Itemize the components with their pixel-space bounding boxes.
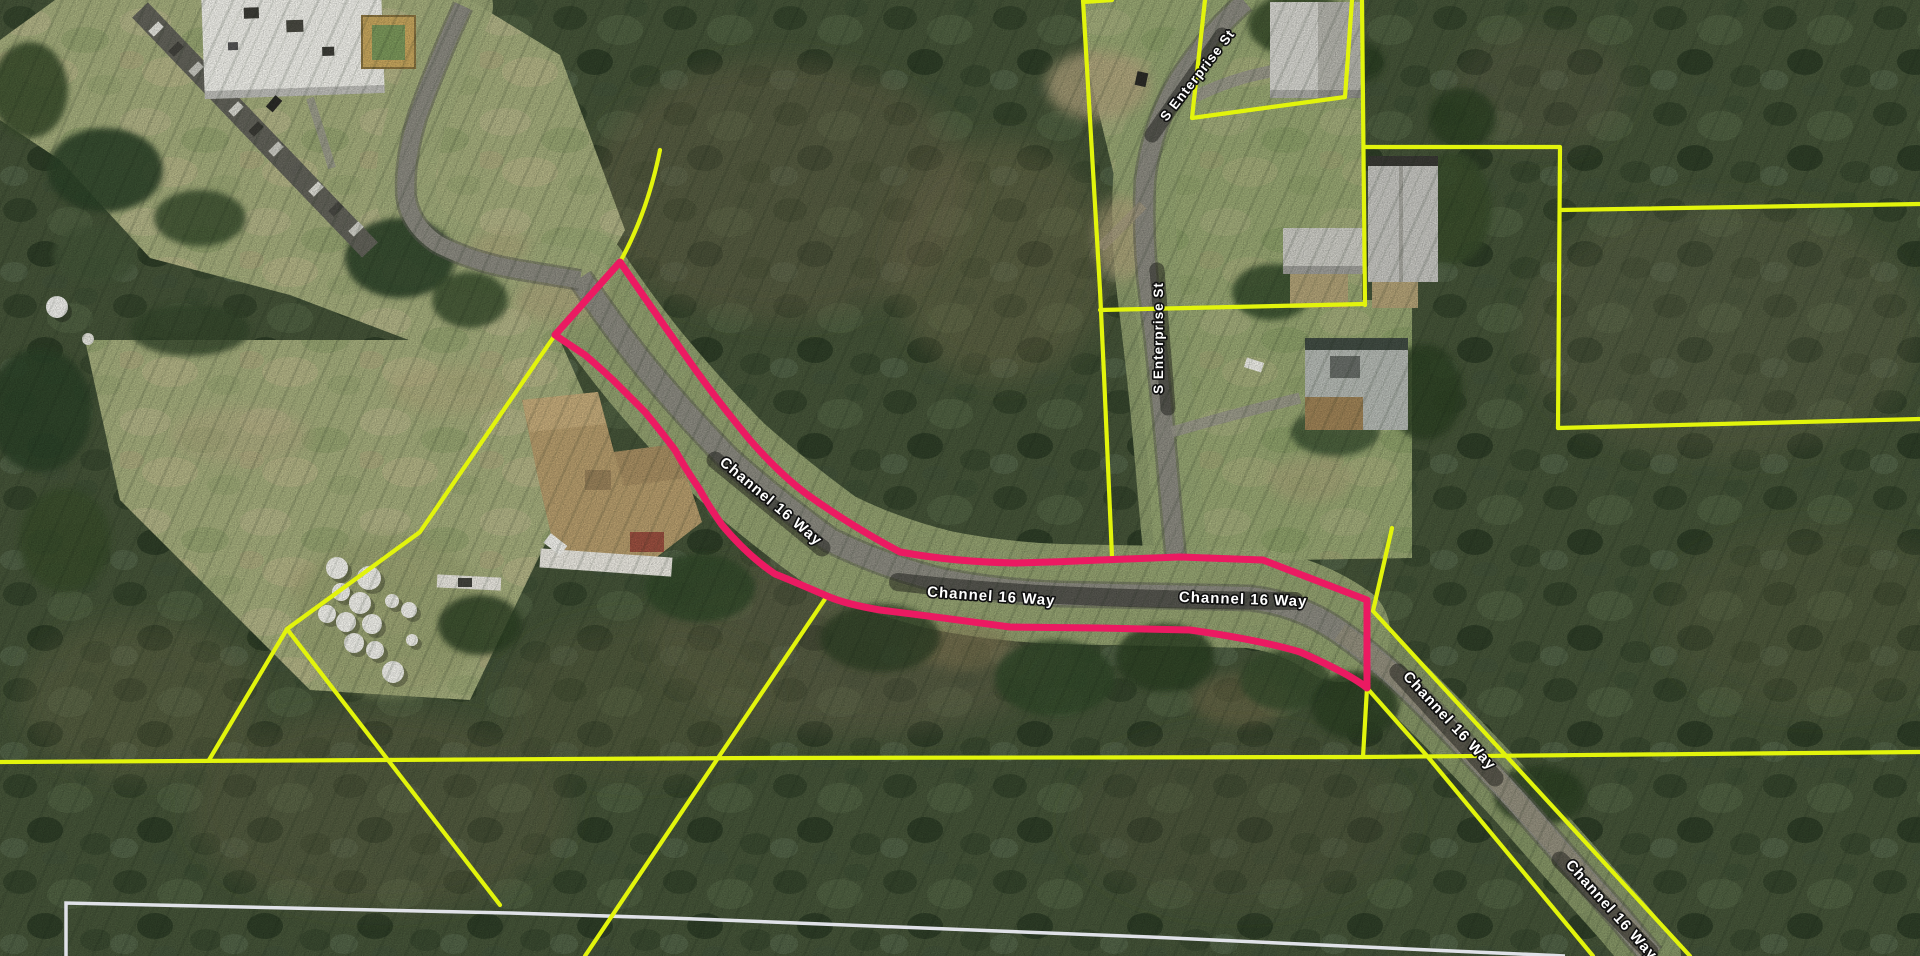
satellite-grain	[0, 0, 1920, 956]
parcel-line-vertical-right	[1362, 0, 1365, 305]
road-label-s-enterprise-st-2: S Enterprise St	[1151, 282, 1166, 394]
map-canvas[interactable]: Channel 16 Way Channel 16 Way Channel 16…	[0, 0, 1920, 956]
aerial-parcel-map[interactable]: Channel 16 Way Channel 16 Way Channel 16…	[0, 0, 1920, 956]
